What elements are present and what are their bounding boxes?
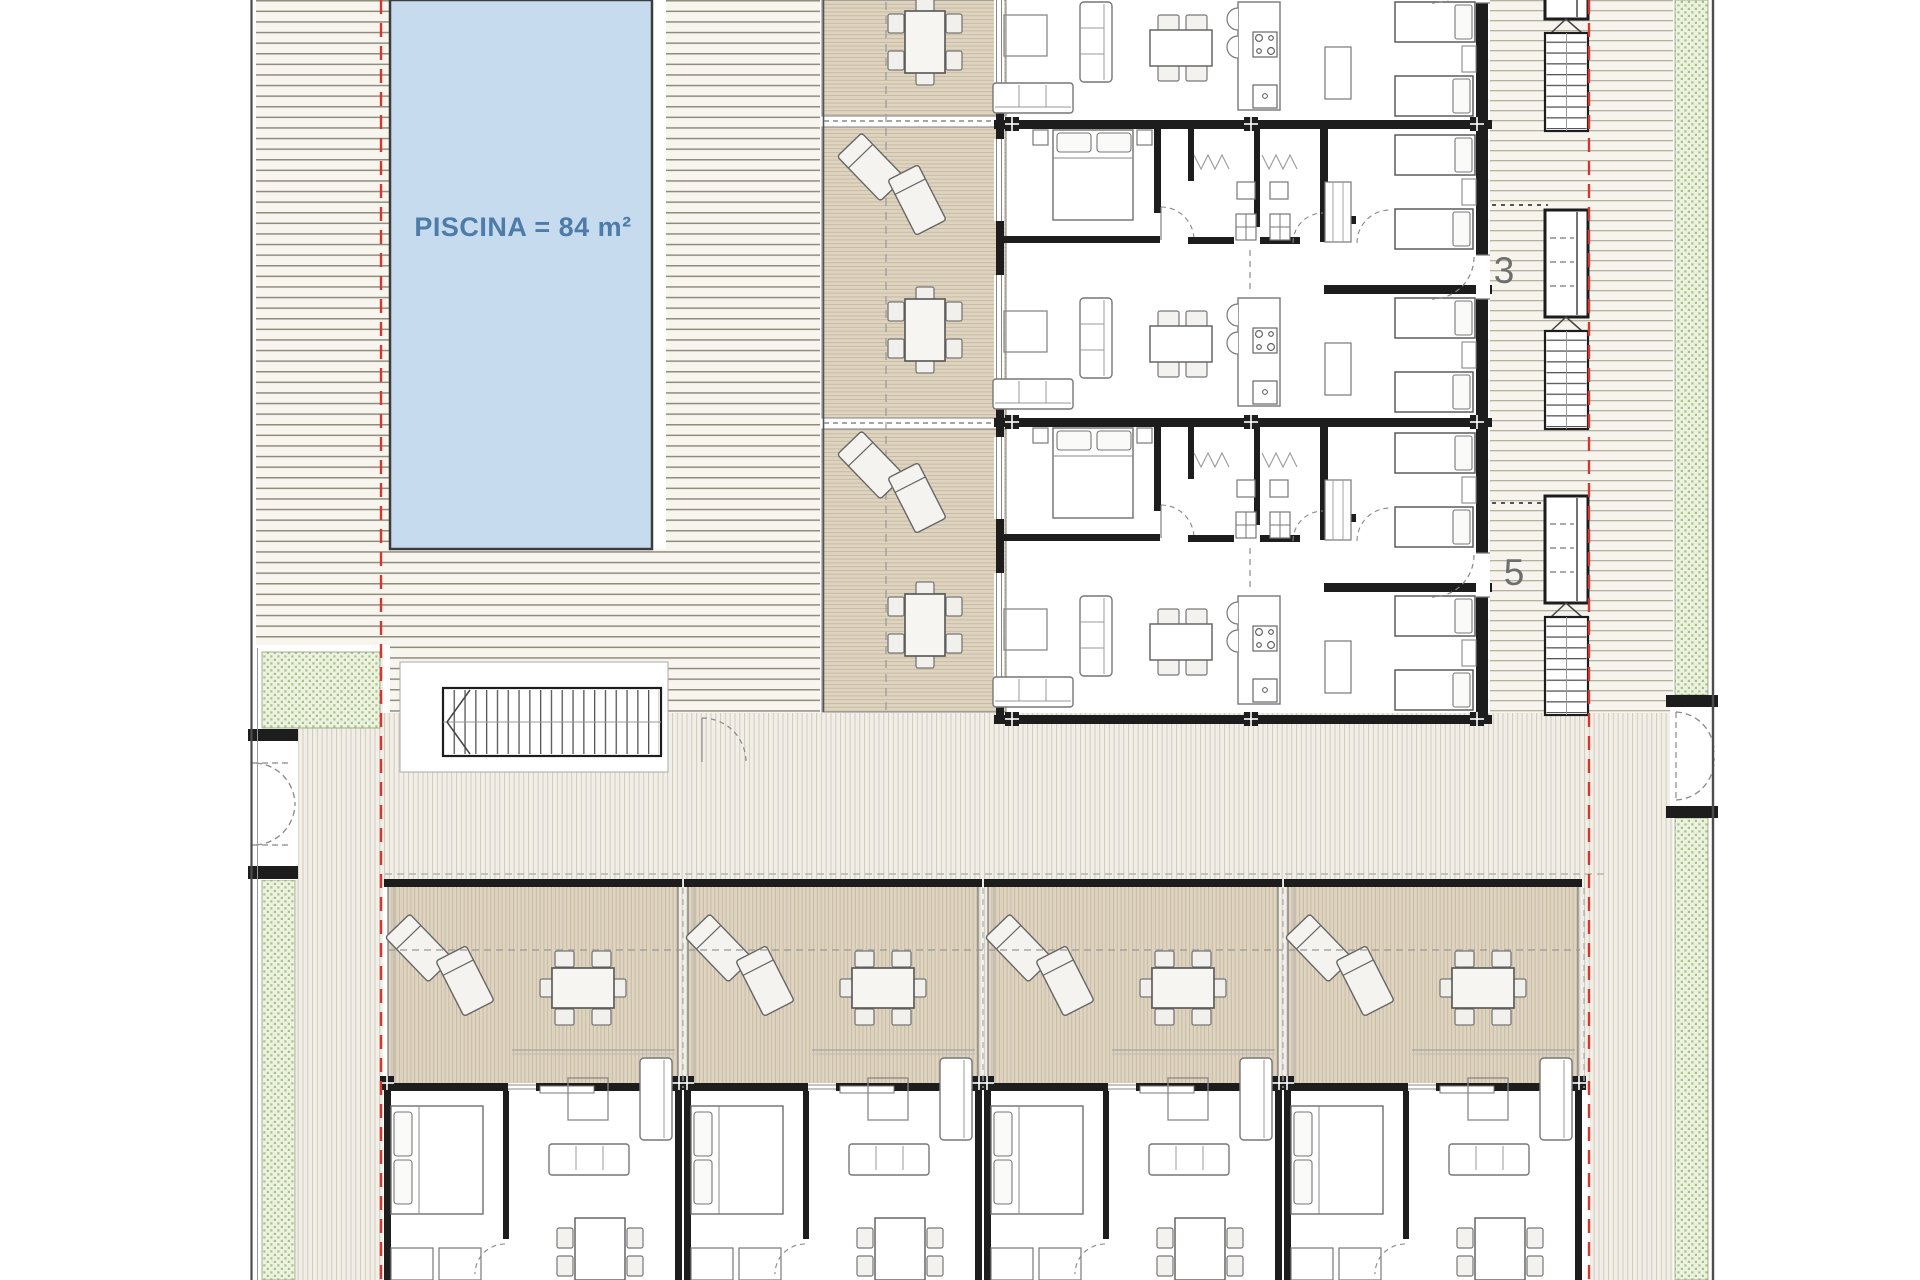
bottom-house-3	[980, 879, 1286, 1280]
pool-water	[390, 0, 652, 549]
pool: PISCINA = 84 m²	[390, 0, 652, 549]
staircase	[1545, 0, 1588, 131]
gate-right	[1666, 695, 1718, 818]
site-floor-plan: PISCINA = 84 m²	[0, 0, 1920, 1280]
unit-number-5: 5	[1504, 552, 1525, 593]
apartment-unit-top	[993, 0, 1548, 116]
apartment-unit-3	[993, 117, 1548, 412]
bottom-house-4	[1280, 879, 1586, 1280]
gate-left	[248, 729, 298, 880]
pool-label: PISCINA = 84 m²	[414, 212, 631, 242]
walkway-left-corridor	[296, 652, 383, 1280]
apartment-unit-5	[993, 415, 1548, 710]
upper-terraces	[822, 0, 1006, 712]
pool-edge-gap	[652, 0, 666, 549]
unit-number-3: 3	[1494, 250, 1515, 291]
walkway-right-corridor	[1590, 887, 1673, 1280]
bottom-house-2	[680, 879, 986, 1280]
apartment-block-upper	[993, 0, 1548, 726]
bottom-house-1	[380, 879, 686, 1280]
pool-deck-left	[256, 0, 390, 645]
floor-plan-page: PISCINA = 84 m²	[0, 0, 1920, 1280]
